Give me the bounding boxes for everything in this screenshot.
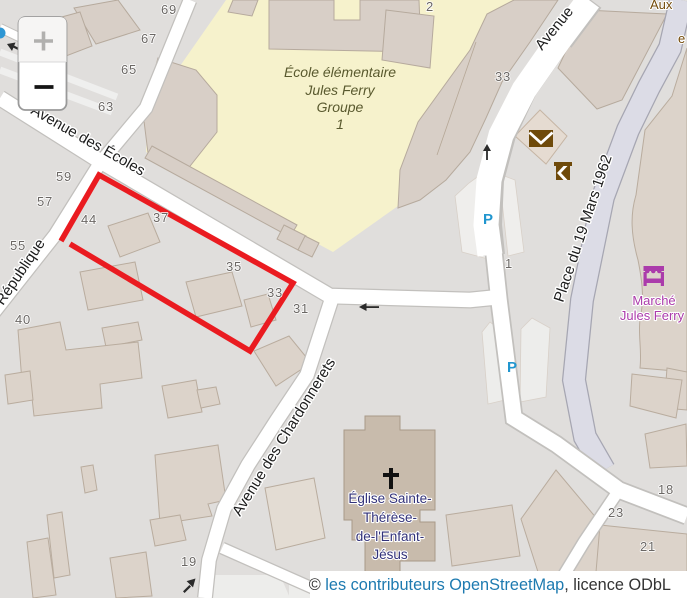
svg-text:63: 63 bbox=[98, 99, 114, 114]
svg-text:1: 1 bbox=[505, 256, 513, 271]
svg-text:Église Sainte-: Église Sainte- bbox=[348, 491, 431, 506]
svg-text:33: 33 bbox=[267, 285, 283, 300]
svg-text:e: e bbox=[678, 31, 685, 46]
svg-text:35: 35 bbox=[226, 259, 242, 274]
svg-text:1: 1 bbox=[336, 116, 344, 132]
svg-text:21: 21 bbox=[640, 539, 656, 554]
svg-text:Marché: Marché bbox=[632, 293, 675, 308]
svg-text:© les contributeurs OpenStreet: © les contributeurs OpenStreetMap, licen… bbox=[309, 576, 671, 594]
svg-text:40: 40 bbox=[15, 312, 31, 327]
svg-text:33: 33 bbox=[495, 69, 511, 84]
svg-text:de-l'Enfant-: de-l'Enfant- bbox=[356, 529, 425, 544]
svg-text:École élémentaire: École élémentaire bbox=[284, 64, 396, 80]
svg-text:55: 55 bbox=[10, 238, 26, 253]
svg-text:65: 65 bbox=[121, 62, 137, 77]
svg-text:18: 18 bbox=[658, 482, 674, 497]
svg-text:67: 67 bbox=[141, 31, 157, 46]
svg-text:P: P bbox=[507, 359, 517, 376]
svg-text:Jules Ferry: Jules Ferry bbox=[620, 308, 685, 323]
svg-text:Jules Ferry: Jules Ferry bbox=[304, 82, 375, 98]
svg-text:69: 69 bbox=[161, 2, 177, 17]
svg-text:44: 44 bbox=[81, 212, 97, 227]
svg-text:37: 37 bbox=[153, 210, 169, 225]
svg-text:23: 23 bbox=[608, 505, 624, 520]
svg-text:Aux: Aux bbox=[650, 0, 673, 12]
svg-text:P: P bbox=[483, 211, 493, 228]
svg-text:Thérèse-: Thérèse- bbox=[363, 510, 417, 525]
svg-text:19: 19 bbox=[181, 554, 197, 569]
svg-text:57: 57 bbox=[37, 194, 53, 209]
svg-text:31: 31 bbox=[293, 301, 309, 316]
svg-text:Jésus: Jésus bbox=[372, 547, 408, 562]
svg-text:59: 59 bbox=[56, 169, 72, 184]
svg-text:Groupe: Groupe bbox=[317, 99, 364, 115]
svg-text:2: 2 bbox=[426, 0, 434, 14]
